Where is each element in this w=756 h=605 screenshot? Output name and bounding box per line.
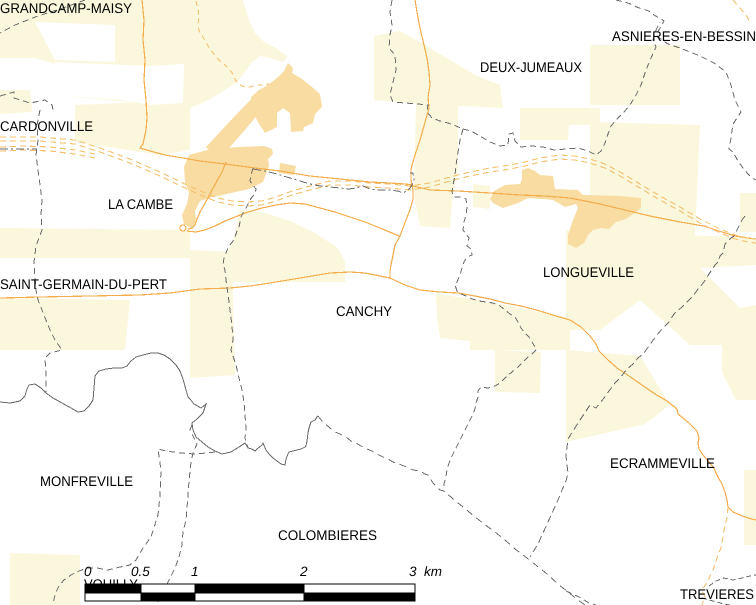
svg-text:ECRAMMEVILLE: ECRAMMEVILLE — [610, 455, 715, 471]
svg-text:ASNIERES-EN-BESSIN: ASNIERES-EN-BESSIN — [612, 28, 756, 44]
svg-text:MONFREVILLE: MONFREVILLE — [40, 473, 133, 489]
svg-text:DEUX-JUMEAUX: DEUX-JUMEAUX — [480, 59, 583, 75]
svg-text:1: 1 — [191, 564, 199, 579]
svg-text:km: km — [424, 564, 442, 579]
svg-text:COLOMBIERES: COLOMBIERES — [278, 527, 377, 543]
svg-text:LONGUEVILLE: LONGUEVILLE — [543, 264, 634, 280]
svg-text:GRANDCAMP-MAISY: GRANDCAMP-MAISY — [0, 0, 133, 16]
svg-text:CANCHY: CANCHY — [336, 303, 393, 319]
svg-text:3: 3 — [409, 564, 417, 579]
svg-text:0: 0 — [84, 564, 92, 579]
svg-text:2: 2 — [299, 564, 308, 579]
svg-text:SAINT-GERMAIN-DU-PERT: SAINT-GERMAIN-DU-PERT — [0, 276, 167, 292]
svg-text:TREVIERES: TREVIERES — [680, 586, 754, 602]
svg-text:LA CAMBE: LA CAMBE — [108, 196, 173, 212]
svg-text:0.5: 0.5 — [131, 564, 150, 579]
svg-text:CARDONVILLE: CARDONVILLE — [0, 118, 93, 134]
